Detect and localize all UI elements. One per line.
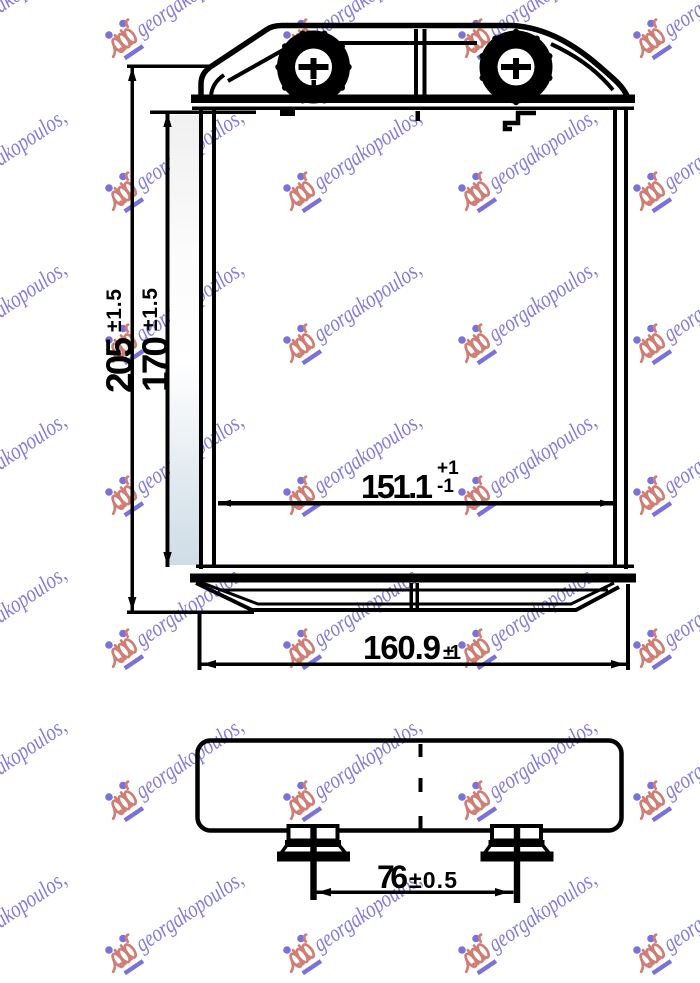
svg-text:±1.5: ±1.5	[139, 288, 162, 331]
svg-text:±1: ±1	[443, 642, 461, 664]
svg-text:160.9: 160.9	[363, 629, 441, 666]
svg-text:151.1: 151.1	[361, 468, 433, 505]
svg-text:±1.5: ±1.5	[103, 289, 126, 332]
svg-text:205: 205	[99, 337, 140, 393]
svg-text:170: 170	[135, 336, 176, 392]
svg-text:76: 76	[377, 859, 408, 895]
svg-text:-1: -1	[437, 476, 454, 497]
svg-text:±0.5: ±0.5	[409, 867, 457, 893]
